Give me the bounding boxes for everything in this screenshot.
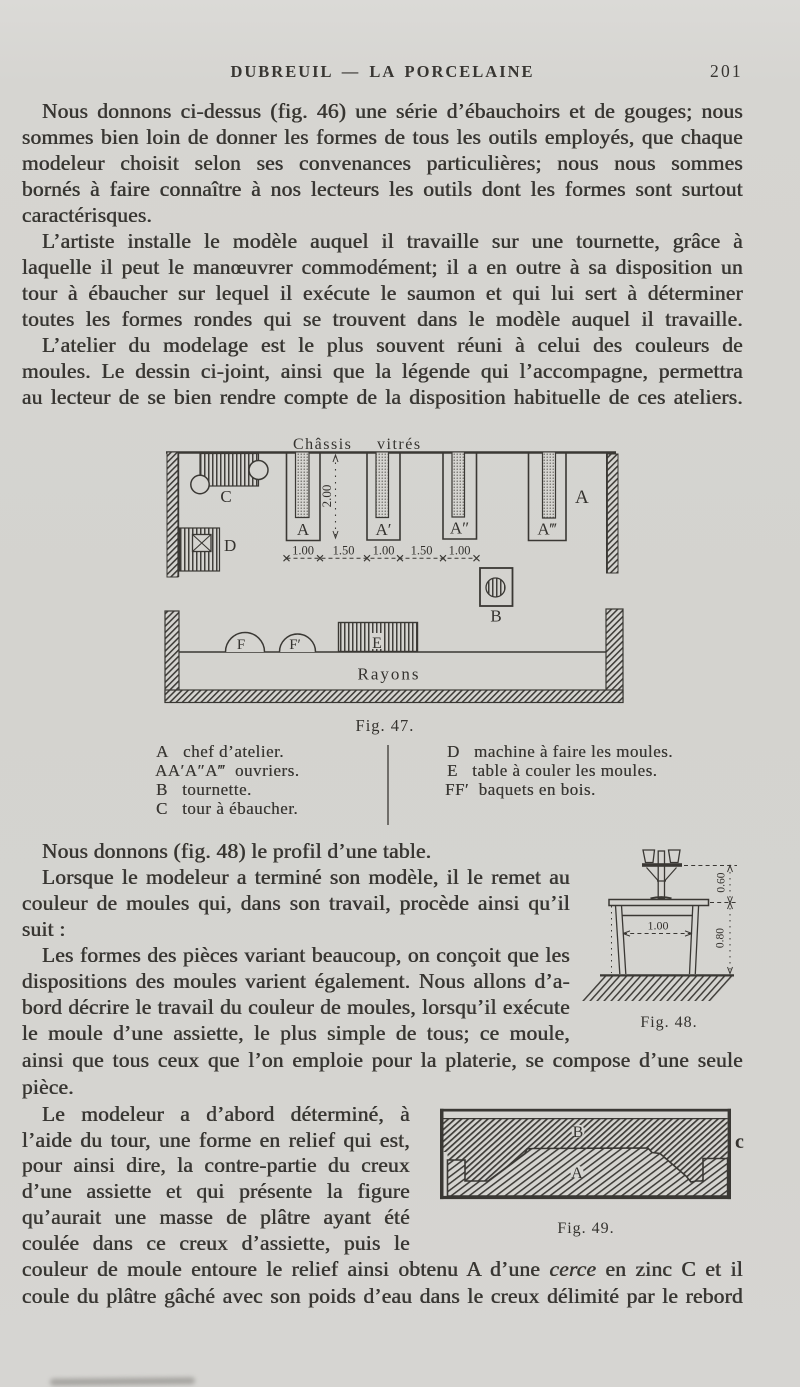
svg-text:F′: F′ (289, 637, 301, 653)
svg-text:1.00: 1.00 (648, 919, 669, 933)
svg-text:1.50: 1.50 (333, 544, 355, 558)
svg-text:A‴: A‴ (537, 520, 556, 539)
svg-text:D: D (224, 536, 236, 555)
svg-text:Fig. 49.: Fig. 49. (557, 1220, 614, 1237)
svg-text:B: B (573, 1124, 584, 1141)
svg-text:0.80: 0.80 (715, 928, 727, 948)
svg-text:Fig. 47.: Fig. 47. (356, 716, 415, 735)
svg-text:C: C (220, 487, 231, 506)
svg-text:A: A (575, 487, 589, 508)
svg-text:1.00: 1.00 (449, 544, 471, 558)
svg-text:1.50: 1.50 (411, 544, 433, 558)
svg-text:1.00: 1.00 (373, 544, 395, 558)
svg-text:Rayons: Rayons (358, 665, 421, 684)
svg-text:F: F (237, 637, 245, 653)
svg-text:E: E (372, 635, 382, 652)
svg-text:A′: A′ (376, 520, 392, 539)
svg-text:A″: A″ (450, 519, 469, 538)
svg-text:A: A (571, 1165, 583, 1182)
svg-text:vitrés: vitrés (377, 436, 422, 453)
svg-text:2.00: 2.00 (319, 485, 334, 508)
svg-text:Châssis: Châssis (293, 436, 352, 453)
svg-text:B: B (490, 607, 501, 626)
svg-text:Fig. 48.: Fig. 48. (640, 1014, 697, 1031)
svg-text:0.60: 0.60 (716, 872, 728, 892)
svg-text:1.00: 1.00 (292, 544, 314, 558)
svg-text:c: c (735, 1131, 744, 1153)
svg-text:A: A (297, 520, 310, 539)
